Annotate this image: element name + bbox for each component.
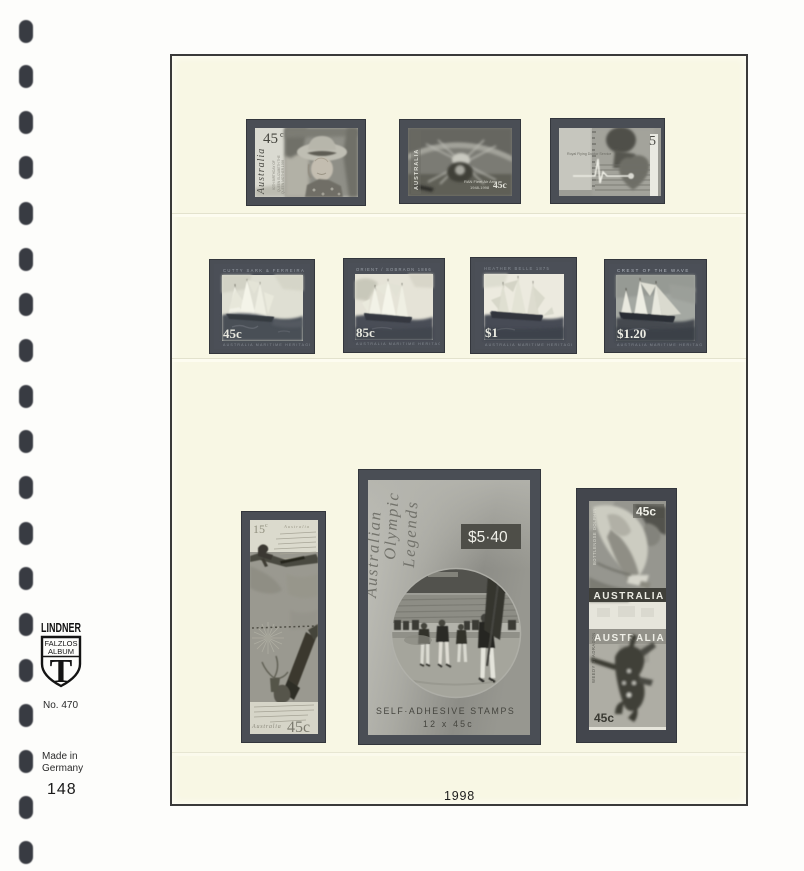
svg-text:c: c [280,130,284,139]
svg-text:Legends: Legends [399,500,422,570]
svg-text:AUSTRALIA MARITIME HERITAGE: AUSTRALIA MARITIME HERITAGE [485,343,572,347]
svg-text:85c: 85c [356,325,375,340]
svg-text:c: c [265,523,268,529]
svg-text:AUSTRALIA: AUSTRALIA [594,633,665,644]
svg-text:LINDNER: LINDNER [41,621,81,635]
svg-text:15: 15 [253,522,265,536]
svg-text:12 x 45c: 12 x 45c [423,719,474,729]
svg-text:CUTTY SARK & FERREIRA: CUTTY SARK & FERREIRA [223,268,305,273]
svg-text:CREST OF THE WAVE: CREST OF THE WAVE [617,268,690,273]
svg-text:$5·40: $5·40 [468,529,508,546]
svg-text:45c: 45c [636,505,656,519]
svg-text:WEEDY SEADRAGON: WEEDY SEADRAGON [591,632,596,683]
svg-text:Australia: Australia [251,724,282,730]
svg-text:Australia: Australia [256,148,267,195]
svg-text:5: 5 [649,134,656,149]
svg-text:AUSTRALIA: AUSTRALIA [594,591,665,602]
svg-text:1948-1998: 1948-1998 [470,185,490,190]
svg-text:Royal Flying Doctor Service: Royal Flying Doctor Service [567,152,611,156]
svg-text:T: T [50,653,73,690]
svg-text:AUSTRALIA MARITIME HERITAGE: AUSTRALIA MARITIME HERITAGE [223,343,310,347]
svg-text:QUEEN MOTHER 1998: QUEEN MOTHER 1998 [281,160,285,194]
svg-text:$1: $1 [485,325,498,340]
svg-text:80TH BIRTHDAY OF: 80TH BIRTHDAY OF [272,160,276,190]
svg-text:45c: 45c [594,711,614,725]
svg-text:45c: 45c [287,719,310,734]
svg-text:$1.20: $1.20 [617,326,646,341]
svg-text:45: 45 [263,131,278,147]
svg-text:BOTTLENOSE DOLPHIN: BOTTLENOSE DOLPHIN [592,508,597,565]
svg-text:45c: 45c [223,326,242,341]
svg-text:Australia: Australia [283,524,310,529]
svg-text:45c: 45c [493,181,507,191]
svg-text:ORIENT / SOBRAON 1866: ORIENT / SOBRAON 1866 [356,267,432,272]
svg-text:AUSTRALIA: AUSTRALIA [414,149,420,190]
svg-text:HEATHER BELLE 1875: HEATHER BELLE 1875 [484,266,550,271]
svg-text:AUSTRALIA MARITIME HERITAGE: AUSTRALIA MARITIME HERITAGE [356,342,440,346]
svg-text:AUSTRALIA MARITIME HERITAGE: AUSTRALIA MARITIME HERITAGE [617,343,702,347]
svg-text:SELF·ADHESIVE STAMPS: SELF·ADHESIVE STAMPS [376,706,515,716]
